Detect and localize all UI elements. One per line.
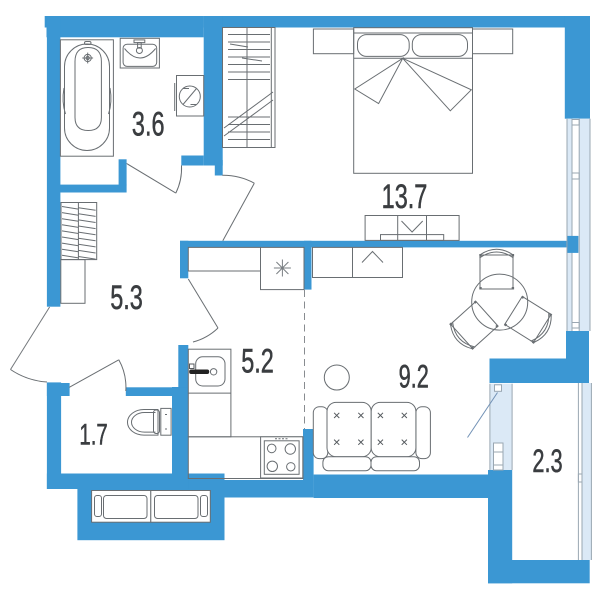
- svg-text:13.7: 13.7: [382, 177, 428, 216]
- svg-text:5.3: 5.3: [110, 279, 143, 318]
- svg-text:5.2: 5.2: [241, 342, 274, 381]
- svg-text:2.3: 2.3: [532, 443, 562, 479]
- svg-text:9.2: 9.2: [399, 358, 429, 394]
- svg-text:1.7: 1.7: [79, 419, 107, 452]
- svg-text:3.6: 3.6: [132, 105, 165, 144]
